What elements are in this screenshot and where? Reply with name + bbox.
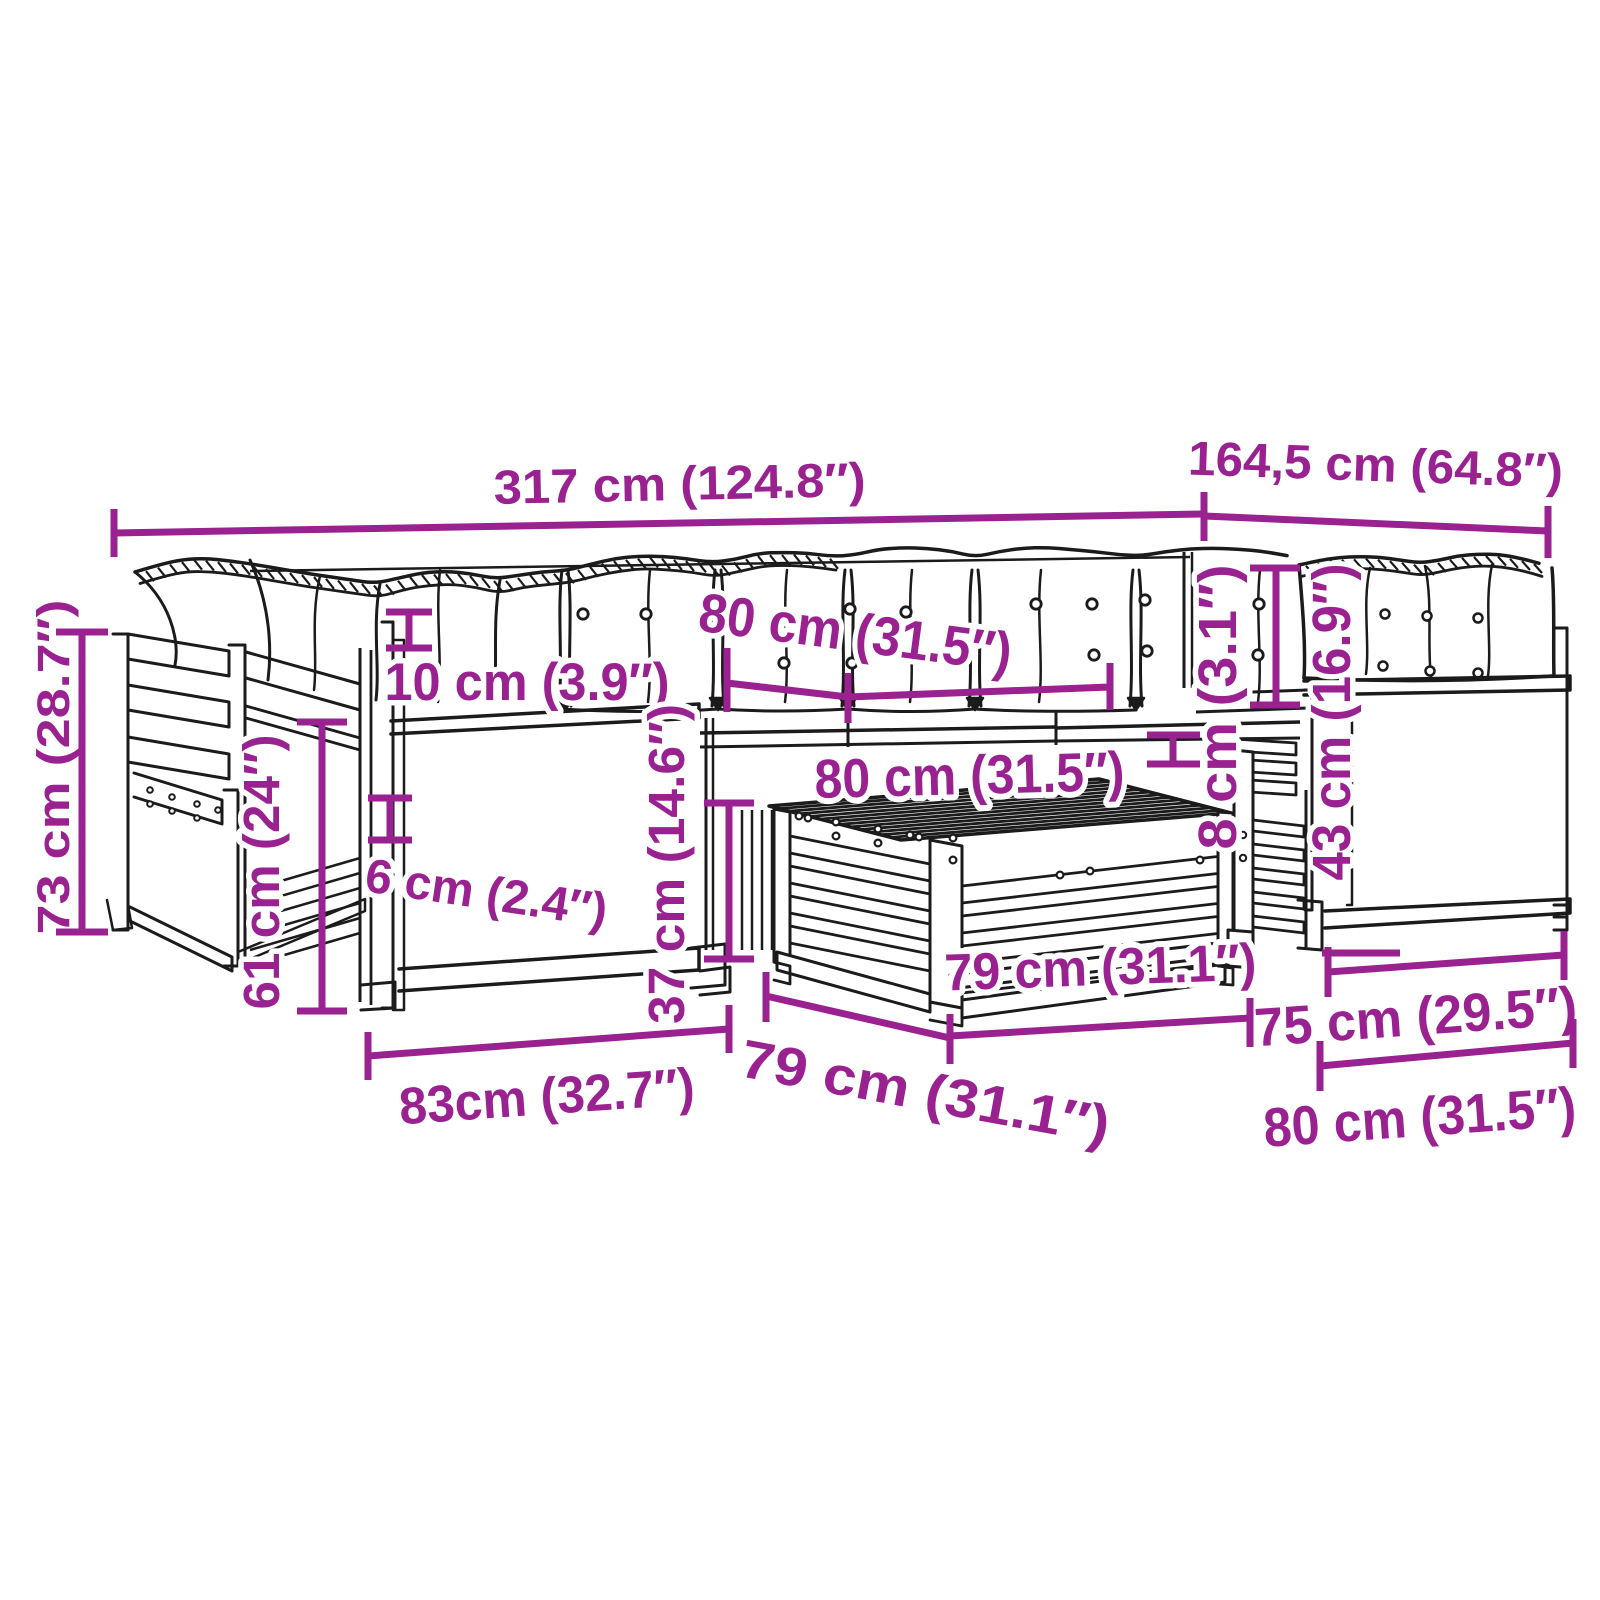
svg-text:8 cm (3.1″): 8 cm (3.1″): [1188, 565, 1248, 850]
svg-text:61 cm (24″): 61 cm (24″): [233, 735, 290, 1010]
svg-text:37 cm (14.6″): 37 cm (14.6″): [638, 704, 695, 1024]
svg-text:79 cm (31.1″): 79 cm (31.1″): [943, 934, 1257, 1003]
svg-text:10 cm (3.9″): 10 cm (3.9″): [385, 653, 670, 712]
svg-text:80 cm (31.5″): 80 cm (31.5″): [814, 740, 1126, 810]
svg-text:317 cm (124.8″): 317 cm (124.8″): [493, 454, 866, 515]
svg-text:43 cm (16.9″): 43 cm (16.9″): [1302, 564, 1362, 881]
svg-text:73 cm (28.7″): 73 cm (28.7″): [28, 600, 79, 935]
